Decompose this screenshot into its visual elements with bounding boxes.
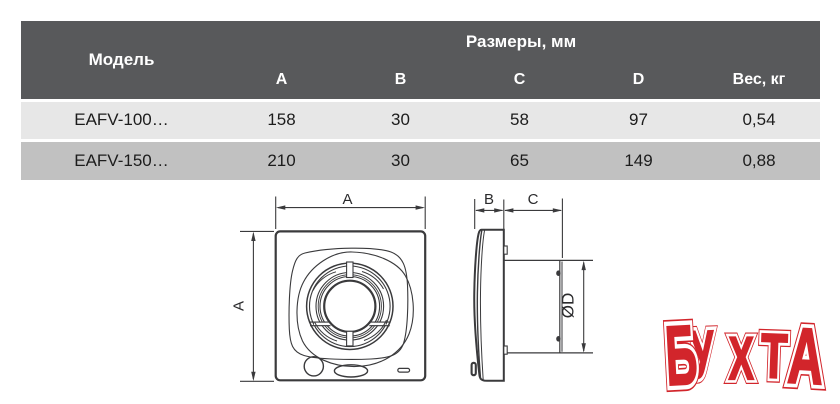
- svg-text:A: A: [231, 301, 248, 311]
- svg-text:Т: Т: [760, 321, 789, 392]
- svg-text:Б: Б: [663, 308, 699, 404]
- svg-text:C: C: [528, 191, 539, 208]
- svg-text:А: А: [786, 311, 826, 400]
- svg-text:ØD: ØD: [559, 293, 578, 319]
- svg-text:B: B: [484, 191, 494, 208]
- svg-text:A: A: [342, 191, 352, 208]
- svg-text:Х: Х: [729, 324, 754, 393]
